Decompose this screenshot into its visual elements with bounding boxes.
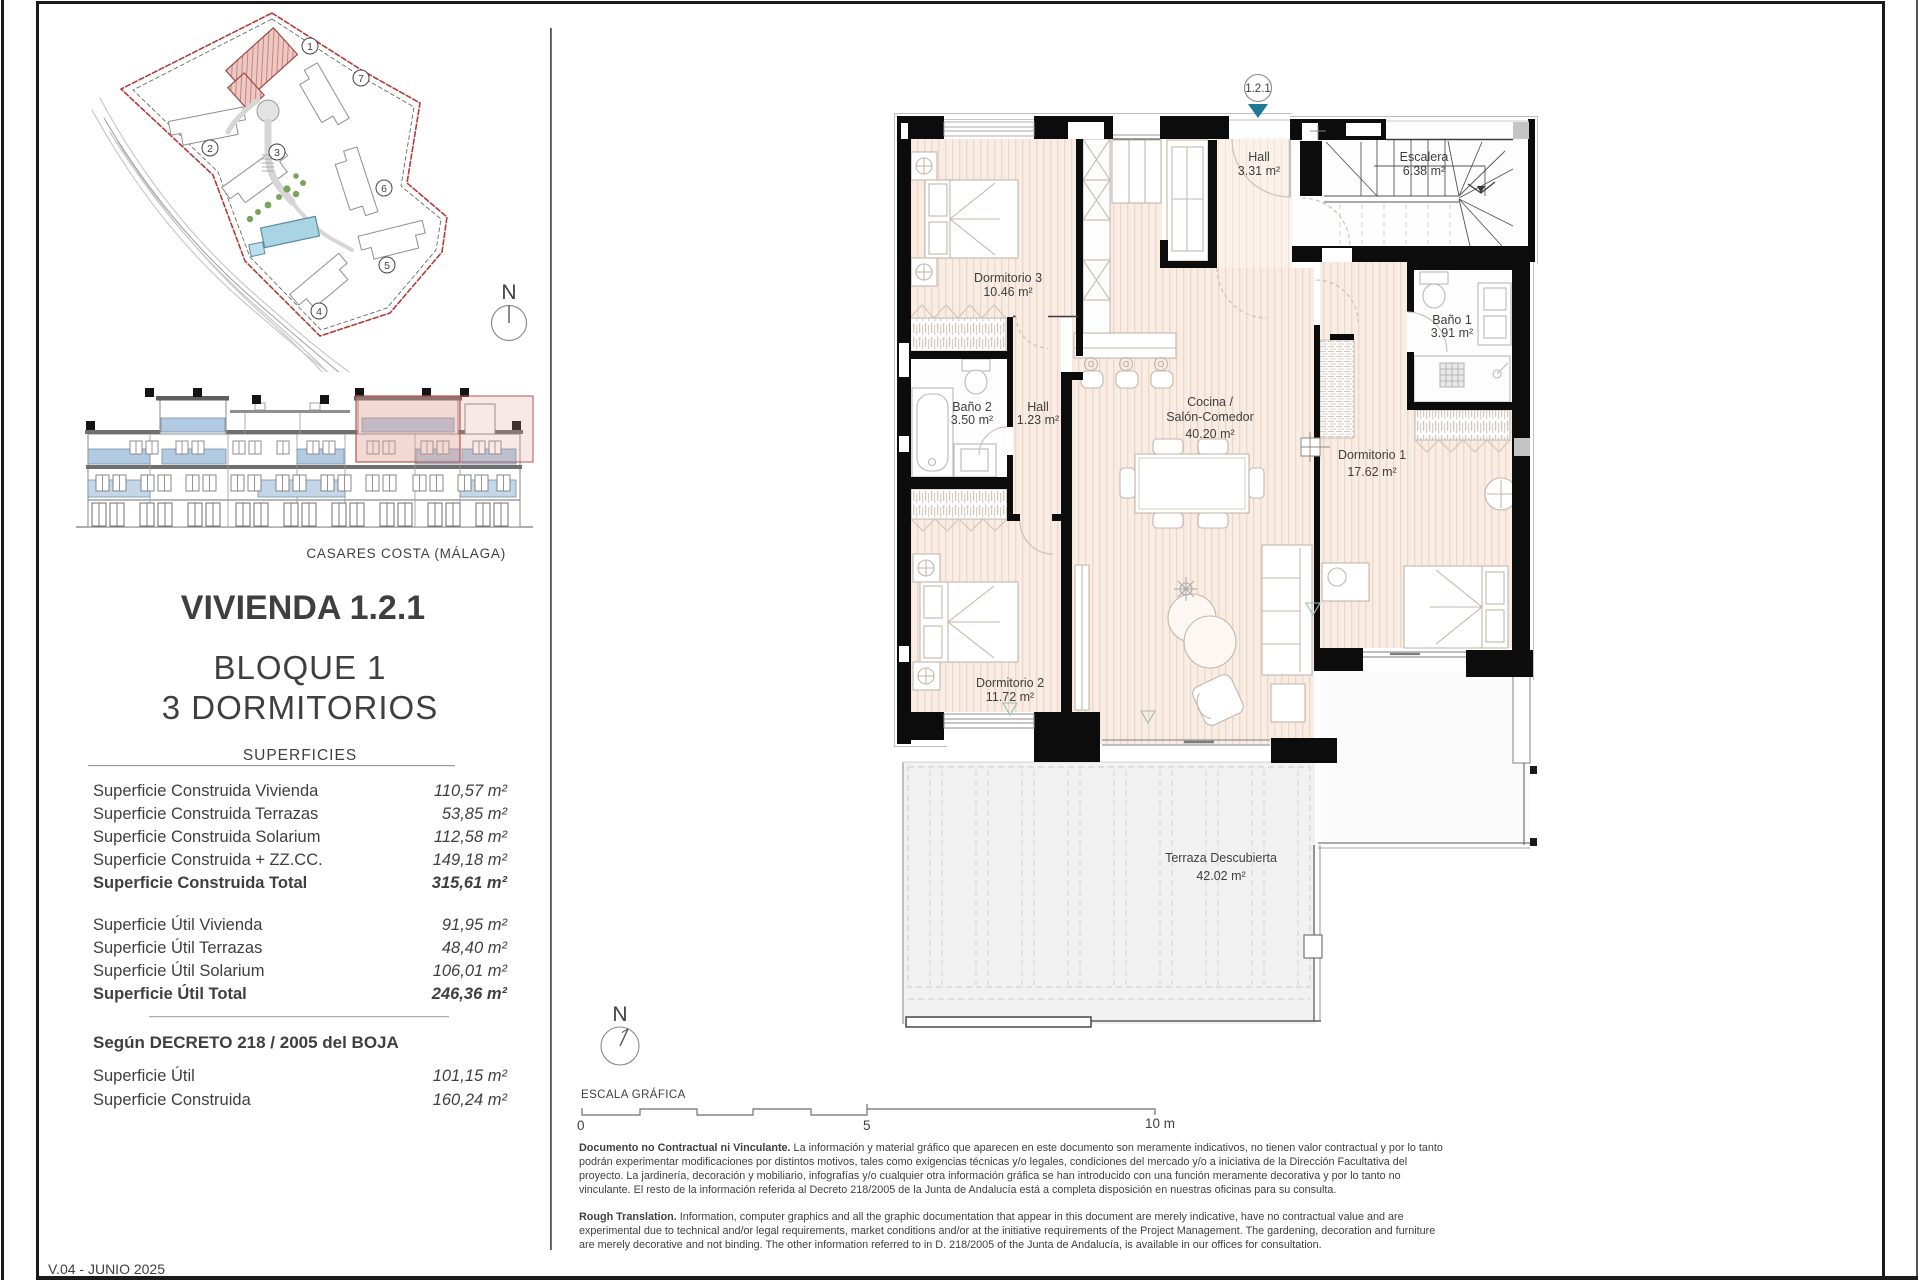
svg-text:2: 2 [207, 143, 213, 155]
svg-text:149,18 m²: 149,18 m² [433, 851, 508, 869]
svg-text:3.50 m²: 3.50 m² [951, 413, 993, 427]
svg-text:Salón-Comedor: Salón-Comedor [1166, 410, 1254, 424]
svg-text:are merely decorative and not: are merely decorative and not binding. T… [579, 1239, 1322, 1251]
svg-text:42.02 m²: 42.02 m² [1196, 869, 1245, 883]
svg-text:CASARES COSTA (MÁLAGA): CASARES COSTA (MÁLAGA) [306, 546, 506, 561]
svg-text:vinculante. El resto de la inf: vinculante. El resto de la información r… [579, 1184, 1336, 1196]
svg-text:Superficie Construida Vivienda: Superficie Construida Vivienda [93, 782, 319, 800]
svg-text:SUPERFICIES: SUPERFICIES [243, 747, 357, 764]
svg-text:Superficie Útil: Superficie Útil [93, 1066, 195, 1085]
svg-text:5: 5 [863, 1118, 871, 1133]
svg-text:Baño 2: Baño 2 [952, 400, 992, 414]
svg-text:Cocina /: Cocina / [1187, 395, 1233, 409]
svg-text:podrán experimentar modificaci: podrán experimentar modificaciones por d… [579, 1156, 1407, 1168]
svg-text:experimental due to technical: experimental due to technical and/or leg… [579, 1225, 1435, 1237]
svg-text:Documento no Contractual ni Vi: Documento no Contractual ni Vinculante. … [579, 1142, 1443, 1154]
svg-text:40.20 m²: 40.20 m² [1185, 427, 1234, 441]
svg-text:Superficie Útil Vivienda: Superficie Útil Vivienda [93, 915, 263, 934]
svg-text:10.46 m²: 10.46 m² [983, 285, 1032, 299]
svg-text:Dormitorio 3: Dormitorio 3 [974, 271, 1042, 285]
svg-text:N: N [501, 281, 516, 304]
svg-text:11.72 m²: 11.72 m² [986, 690, 1034, 704]
svg-text:VIVIENDA 1.2.1: VIVIENDA 1.2.1 [181, 589, 425, 627]
svg-text:48,40 m²: 48,40 m² [442, 939, 508, 957]
svg-text:Rough Translation. Information: Rough Translation. Information, computer… [579, 1211, 1404, 1223]
svg-text:Dormitorio 1: Dormitorio 1 [1338, 448, 1406, 462]
svg-text:Escalera: Escalera [1400, 150, 1449, 164]
svg-text:Hall: Hall [1027, 400, 1049, 414]
svg-text:Superficie Útil Terrazas: Superficie Útil Terrazas [93, 938, 262, 957]
svg-text:0: 0 [577, 1118, 585, 1133]
svg-text:Superficie Útil Total: Superficie Útil Total [93, 984, 247, 1003]
svg-text:17.62 m²: 17.62 m² [1347, 465, 1396, 479]
svg-text:101,15 m²: 101,15 m² [433, 1067, 508, 1085]
svg-text:53,85 m²: 53,85 m² [442, 805, 508, 823]
svg-text:112,58 m²: 112,58 m² [434, 828, 508, 846]
svg-text:ESCALA GRÁFICA: ESCALA GRÁFICA [581, 1088, 686, 1101]
svg-text:Baño 1: Baño 1 [1432, 313, 1472, 327]
svg-text:Hall: Hall [1248, 150, 1270, 164]
svg-text:Superficie Construida: Superficie Construida [93, 1091, 252, 1109]
svg-text:246,36 m²: 246,36 m² [431, 985, 508, 1003]
svg-text:160,24 m²: 160,24 m² [433, 1091, 508, 1109]
svg-text:Según DECRETO 218 / 2005 del B: Según DECRETO 218 / 2005 del BOJA [93, 1033, 399, 1052]
svg-text:BLOQUE 1: BLOQUE 1 [213, 649, 386, 686]
svg-text:Superficie Construida Terrazas: Superficie Construida Terrazas [93, 805, 318, 823]
svg-text:Superficie Construida Solarium: Superficie Construida Solarium [93, 828, 320, 846]
svg-text:Dormitorio 2: Dormitorio 2 [976, 676, 1044, 690]
svg-text:6.38 m²: 6.38 m² [1403, 164, 1445, 178]
svg-text:Superficie Construida + ZZ.CC.: Superficie Construida + ZZ.CC. [93, 851, 323, 869]
svg-text:5: 5 [384, 260, 390, 272]
svg-text:Superficie Construida Total: Superficie Construida Total [93, 874, 307, 892]
svg-text:3.91 m²: 3.91 m² [1431, 326, 1473, 340]
svg-text:1.2.1: 1.2.1 [1245, 83, 1271, 95]
svg-text:1: 1 [307, 41, 313, 53]
svg-text:91,95 m²: 91,95 m² [442, 916, 508, 934]
svg-text:6: 6 [381, 183, 387, 195]
svg-text:V.04 - JUNIO 2025: V.04 - JUNIO 2025 [48, 1261, 165, 1277]
svg-text:Terraza Descubierta: Terraza Descubierta [1165, 851, 1277, 865]
svg-text:106,01 m²: 106,01 m² [433, 962, 508, 980]
svg-text:Superficie Útil Solarium: Superficie Útil Solarium [93, 961, 264, 980]
svg-text:N: N [612, 1003, 627, 1026]
svg-text:3.31 m²: 3.31 m² [1238, 164, 1280, 178]
svg-text:1.23 m²: 1.23 m² [1017, 413, 1059, 427]
svg-text:110,57 m²: 110,57 m² [434, 782, 508, 800]
svg-text:315,61 m²: 315,61 m² [432, 874, 508, 892]
svg-text:7: 7 [358, 73, 364, 85]
svg-text:4: 4 [316, 306, 322, 318]
svg-text:3: 3 [274, 147, 280, 159]
svg-text:3 DORMITORIOS: 3 DORMITORIOS [162, 689, 438, 726]
svg-text:10 m: 10 m [1145, 1116, 1175, 1131]
svg-text:proyecto. La jardinería, decor: proyecto. La jardinería, decoración y mo… [579, 1170, 1401, 1182]
